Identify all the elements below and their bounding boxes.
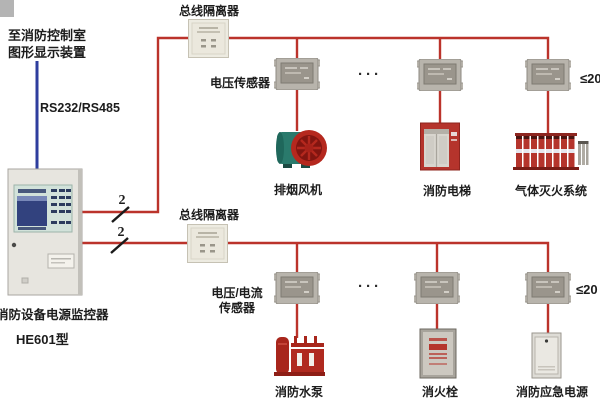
monitor-name-label: 消防设备电源监控器: [0, 304, 109, 323]
loop2-sensor-line1: 电压/电流: [202, 286, 272, 301]
loop1-wire-slash: [112, 207, 129, 222]
pump-label: 消防水泵: [269, 383, 329, 400]
sensor-5-device: [414, 272, 460, 304]
loop2-bus-line: [78, 243, 548, 274]
monitor-lock: [12, 243, 16, 247]
bus-isolator-1-device: [188, 19, 229, 58]
loop2-capacity-label: ≤20: [576, 282, 598, 297]
loop2-isolator-label: 总线隔离器: [174, 206, 244, 223]
loop2-sensor-line2: 传感器: [202, 301, 272, 316]
bus-isolator-2-device: [187, 224, 228, 263]
monitor-model-label: HE601型: [16, 329, 69, 348]
control-room-line2: 图形显示装置: [8, 44, 86, 61]
sensor-4-device: [274, 272, 320, 304]
fire-pump-device: [273, 329, 327, 379]
diagram-canvas: 至消防控制室 图形显示装置 RS232/RS485 2 2 总线隔离器 总线隔离…: [0, 0, 600, 400]
serial-link-label: RS232/RS485: [40, 101, 120, 115]
emergency-power-device: [530, 330, 564, 380]
sensor-6-device: [525, 272, 571, 304]
fire-hydrant-device: [419, 326, 459, 380]
gas-system-label: 气体灭火系统: [511, 182, 591, 199]
sensor-3-device: [525, 59, 571, 91]
loop1-isolator-label: 总线隔离器: [174, 2, 244, 19]
loop1-capacity-label: ≤20: [580, 71, 600, 86]
loop2-wire-count: 2: [113, 225, 129, 241]
loop1-wire-count: 2: [114, 193, 130, 209]
loop1-ellipsis: ···: [358, 66, 382, 83]
gas-suppression-device: [513, 128, 589, 172]
loop2-sensor-label: 电压/电流 传感器: [202, 286, 272, 316]
power-monitor-device: [6, 166, 86, 298]
hydrant-label: 消火栓: [410, 383, 470, 400]
fire-elevator-device: [420, 121, 462, 172]
control-room-label: 至消防控制室 图形显示装置: [8, 27, 86, 61]
smoke-exhaust-fan-device: [275, 126, 329, 171]
loop1-sensor-label: 电压传感器: [210, 74, 270, 91]
sensor-1-device: [274, 58, 320, 90]
elevator-label: 消防电梯: [417, 182, 477, 199]
control-room-line1: 至消防控制室: [8, 27, 86, 44]
fan-label: 排烟风机: [268, 181, 328, 198]
emergency-power-label: 消防应急电源: [510, 383, 594, 400]
loop2-ellipsis: ···: [358, 278, 382, 295]
sensor-2-device: [417, 59, 463, 91]
